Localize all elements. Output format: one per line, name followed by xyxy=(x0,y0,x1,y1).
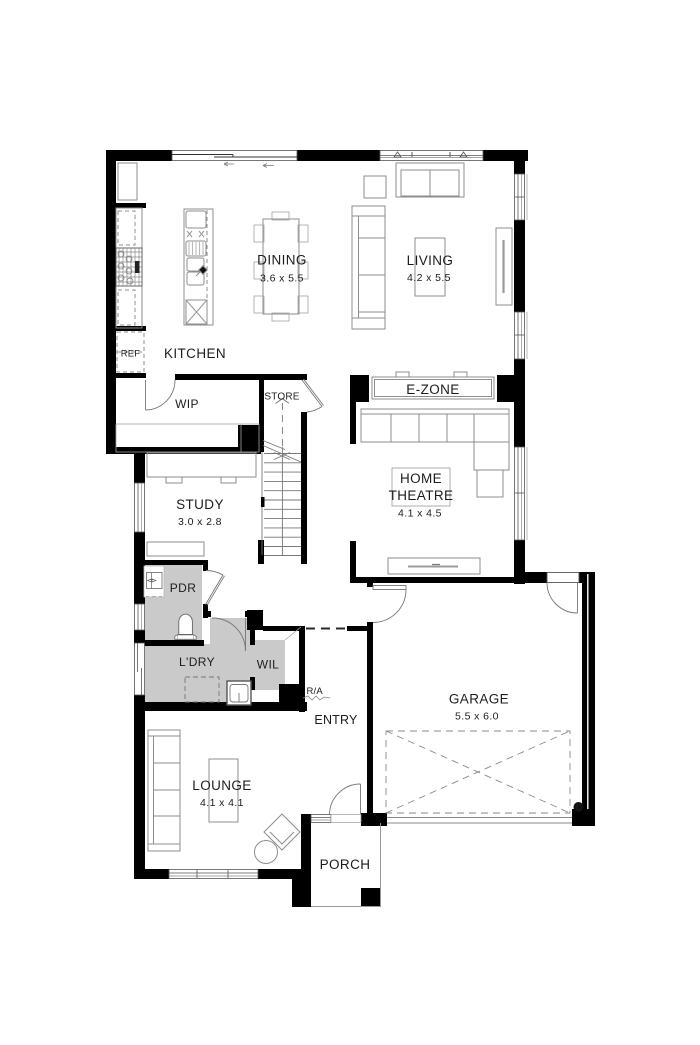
svg-text:R/A: R/A xyxy=(307,686,324,697)
svg-text:REF: REF xyxy=(121,349,141,360)
svg-text:5.5 x 6.0: 5.5 x 6.0 xyxy=(455,711,499,723)
svg-text:LOUNGE: LOUNGE xyxy=(192,778,251,793)
svg-text:KITCHEN: KITCHEN xyxy=(164,346,226,361)
svg-text:4.1 x 4.5: 4.1 x 4.5 xyxy=(398,508,442,520)
svg-text:C: C xyxy=(576,803,582,812)
svg-text:LIVING: LIVING xyxy=(407,253,454,268)
svg-text:4.1 x 4.1: 4.1 x 4.1 xyxy=(200,797,244,809)
svg-text:E-ZONE: E-ZONE xyxy=(406,382,459,397)
svg-text:3.6 x 5.5: 3.6 x 5.5 xyxy=(260,273,304,285)
svg-text:STORE: STORE xyxy=(264,392,299,403)
svg-text:THEATRE: THEATRE xyxy=(389,488,454,503)
svg-text:HOME: HOME xyxy=(400,471,442,486)
svg-text:PORCH: PORCH xyxy=(320,857,371,872)
svg-text:ENTRY: ENTRY xyxy=(314,713,358,727)
svg-text:WIP: WIP xyxy=(175,397,199,411)
svg-text:DINING: DINING xyxy=(257,253,307,268)
svg-text:GARAGE: GARAGE xyxy=(449,692,509,707)
svg-text:WIL: WIL xyxy=(257,658,280,672)
svg-text:STUDY: STUDY xyxy=(176,497,224,512)
svg-text:PDR: PDR xyxy=(170,581,197,595)
svg-text:L'DRY: L'DRY xyxy=(179,655,215,669)
svg-text:4.2 x 5.5: 4.2 x 5.5 xyxy=(407,272,451,284)
svg-text:3.0 x 2.8: 3.0 x 2.8 xyxy=(178,516,222,528)
